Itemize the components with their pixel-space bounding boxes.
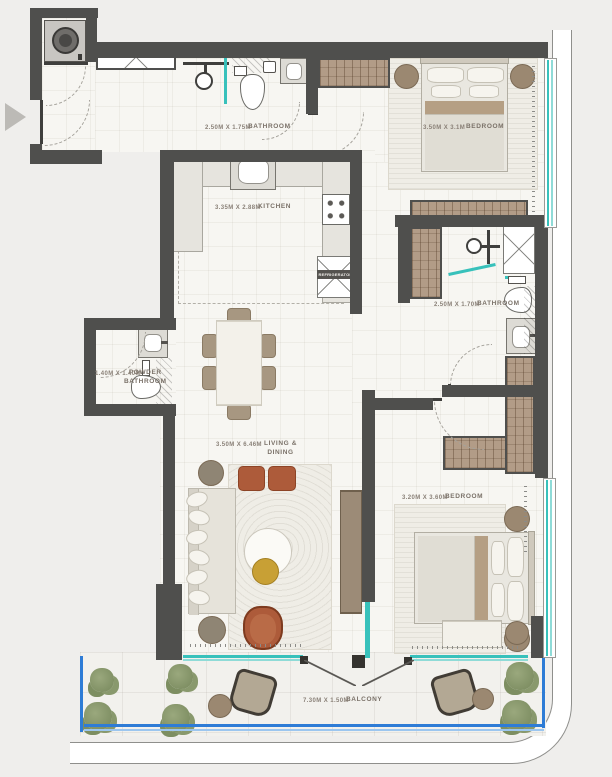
bed2-throw xyxy=(475,536,488,622)
laundry-door-leaf xyxy=(44,62,88,65)
bedroom2-window-glass xyxy=(546,480,548,656)
room-dims: 1.40M X 1.40M xyxy=(95,370,141,378)
room-dims: 3.35M X 2.88M xyxy=(215,204,261,212)
bed1-headboard xyxy=(420,57,509,64)
kitchen-sink-basin xyxy=(238,159,269,184)
room-name: BEDROOM xyxy=(445,493,483,502)
sofa-side-table-bottom xyxy=(198,616,226,644)
bedroom1-window-glass xyxy=(547,60,549,226)
armchair-seat xyxy=(250,614,276,644)
room-dims: 3.50M X 6.46M xyxy=(216,441,262,449)
room-name: BALCONY xyxy=(346,696,382,705)
bedroom2-bed xyxy=(414,532,532,624)
wall-wardrobe-left xyxy=(398,215,410,303)
bedroom1-closet xyxy=(318,58,390,88)
wall-kitchen-right xyxy=(350,162,362,314)
dining-chair xyxy=(260,334,276,358)
balcony-table-left xyxy=(208,694,232,718)
balcony-railing-right xyxy=(542,658,545,728)
balcony-plant xyxy=(90,668,114,692)
bed1-throw xyxy=(425,101,504,114)
bedroom2-plant-pot xyxy=(505,621,529,645)
room-dims: 3.50M X 3.1M xyxy=(423,124,465,132)
wall-entry-bottom xyxy=(30,150,102,164)
entry-door-leaf xyxy=(40,100,43,144)
bed2-headboard xyxy=(528,531,535,625)
bathroom1-wall-sink xyxy=(263,61,276,73)
wall-bath1-bed1 xyxy=(306,42,318,114)
bed2-duvet xyxy=(418,536,475,622)
balcony-glazing-right2 xyxy=(410,659,528,661)
bedroom2-console xyxy=(442,620,502,648)
wall-living-left xyxy=(163,404,175,588)
shower-glass-1 xyxy=(224,56,227,104)
bed1-pillow xyxy=(431,85,461,98)
room-name: LIVING & DINING xyxy=(259,440,302,458)
bathroom1-basin xyxy=(286,63,302,80)
balcony-door-leaf-left xyxy=(304,660,356,686)
bedroom2-wardrobe-right xyxy=(505,356,535,474)
wall-bedroom2-top-stub xyxy=(375,398,433,410)
stove xyxy=(322,194,350,225)
room-name: BATHROOM xyxy=(477,300,520,309)
washing-machine xyxy=(44,20,86,62)
balcony-glazing-right xyxy=(410,655,528,658)
wall-laundry-right xyxy=(86,8,97,62)
dining-chair xyxy=(227,404,251,420)
bedroom1-curtain xyxy=(532,64,535,222)
room-name: BATHROOM xyxy=(248,123,291,132)
ottoman-pouf xyxy=(238,466,265,491)
balcony-railing-bottom-inner xyxy=(84,729,544,731)
bedroom1-window-glass2 xyxy=(551,60,553,226)
room-dims: 2.50M X 1.75M xyxy=(205,124,251,132)
powder-basin xyxy=(144,334,162,352)
living-curtain xyxy=(190,644,305,647)
floor-corridor-top xyxy=(95,58,177,152)
bed2-pillow xyxy=(491,541,505,575)
bed1-pillow xyxy=(469,85,499,98)
wall-powder-left xyxy=(84,318,96,416)
kitchen-counter-left xyxy=(172,160,203,252)
room-dims: 7.30M X 1.50M xyxy=(303,697,349,705)
wall-living-bedroom2 xyxy=(362,390,375,602)
washing-machine-door xyxy=(59,34,72,47)
balcony-plant xyxy=(506,662,534,690)
toilet-2-tank xyxy=(508,276,526,284)
room-name: KITCHEN xyxy=(258,203,291,212)
washing-machine-knob xyxy=(78,54,82,60)
wall-top xyxy=(88,42,548,58)
balcony-glazing-left xyxy=(183,655,303,658)
bed2-pillow xyxy=(491,583,505,617)
wall-bedroom1-bottom xyxy=(395,215,548,227)
tv-console xyxy=(340,490,362,614)
balcony-door-leaf-right xyxy=(362,660,414,686)
wall-powder-top xyxy=(84,318,176,330)
bedroom2-curtain xyxy=(524,482,527,552)
sofa-side-table-top xyxy=(198,460,224,486)
refrigerator-label: REFRIGERATOR xyxy=(317,270,354,279)
bedroom2-window-glass2 xyxy=(550,480,552,656)
bathroom1-vanity xyxy=(280,58,307,84)
wall-living-left-thick xyxy=(156,584,182,660)
bed1-pillow xyxy=(467,67,504,83)
wall-bath2-bottom xyxy=(442,385,542,397)
room-dims: 2.50M X 1.70M xyxy=(434,301,480,309)
ottoman-pouf xyxy=(268,466,296,491)
wall-kitchen-left xyxy=(160,150,174,324)
bed2-pillow xyxy=(507,581,524,621)
shower2-head-icon xyxy=(466,238,482,254)
wall-kitchen-top xyxy=(160,150,362,162)
bedroom2-sliding-glass xyxy=(365,602,370,658)
shower-head-icon xyxy=(195,72,213,90)
balcony-table-right xyxy=(472,688,494,710)
wall-left-upper xyxy=(30,8,42,100)
bed2-pillow xyxy=(507,537,524,577)
shower2-box xyxy=(503,224,535,274)
balcony-plant xyxy=(168,664,193,689)
powder-tap xyxy=(161,341,168,344)
room-name: BEDROOM xyxy=(466,123,504,132)
bedroom2-curtain-bottom xyxy=(412,646,522,649)
balcony-glazing-left2 xyxy=(183,659,303,661)
entry-arrow-icon xyxy=(5,103,26,131)
coffee-table-gold-tray xyxy=(252,558,279,585)
bedroom1-bed xyxy=(421,58,508,172)
dining-chair xyxy=(260,366,276,390)
room-dims: 3.20M X 3.60M xyxy=(402,494,448,502)
wall-right-mid xyxy=(535,222,548,478)
balcony-railing-left xyxy=(80,656,83,732)
bed1-pillow xyxy=(427,67,464,83)
corridor-wardrobe xyxy=(410,227,442,299)
balcony-plant xyxy=(162,704,190,732)
balcony-railing-bottom xyxy=(84,724,544,727)
floor-plan: REFRIGERATOR xyxy=(0,0,612,777)
bedroom1-nightstand-left xyxy=(394,64,419,89)
dining-table xyxy=(216,320,262,406)
